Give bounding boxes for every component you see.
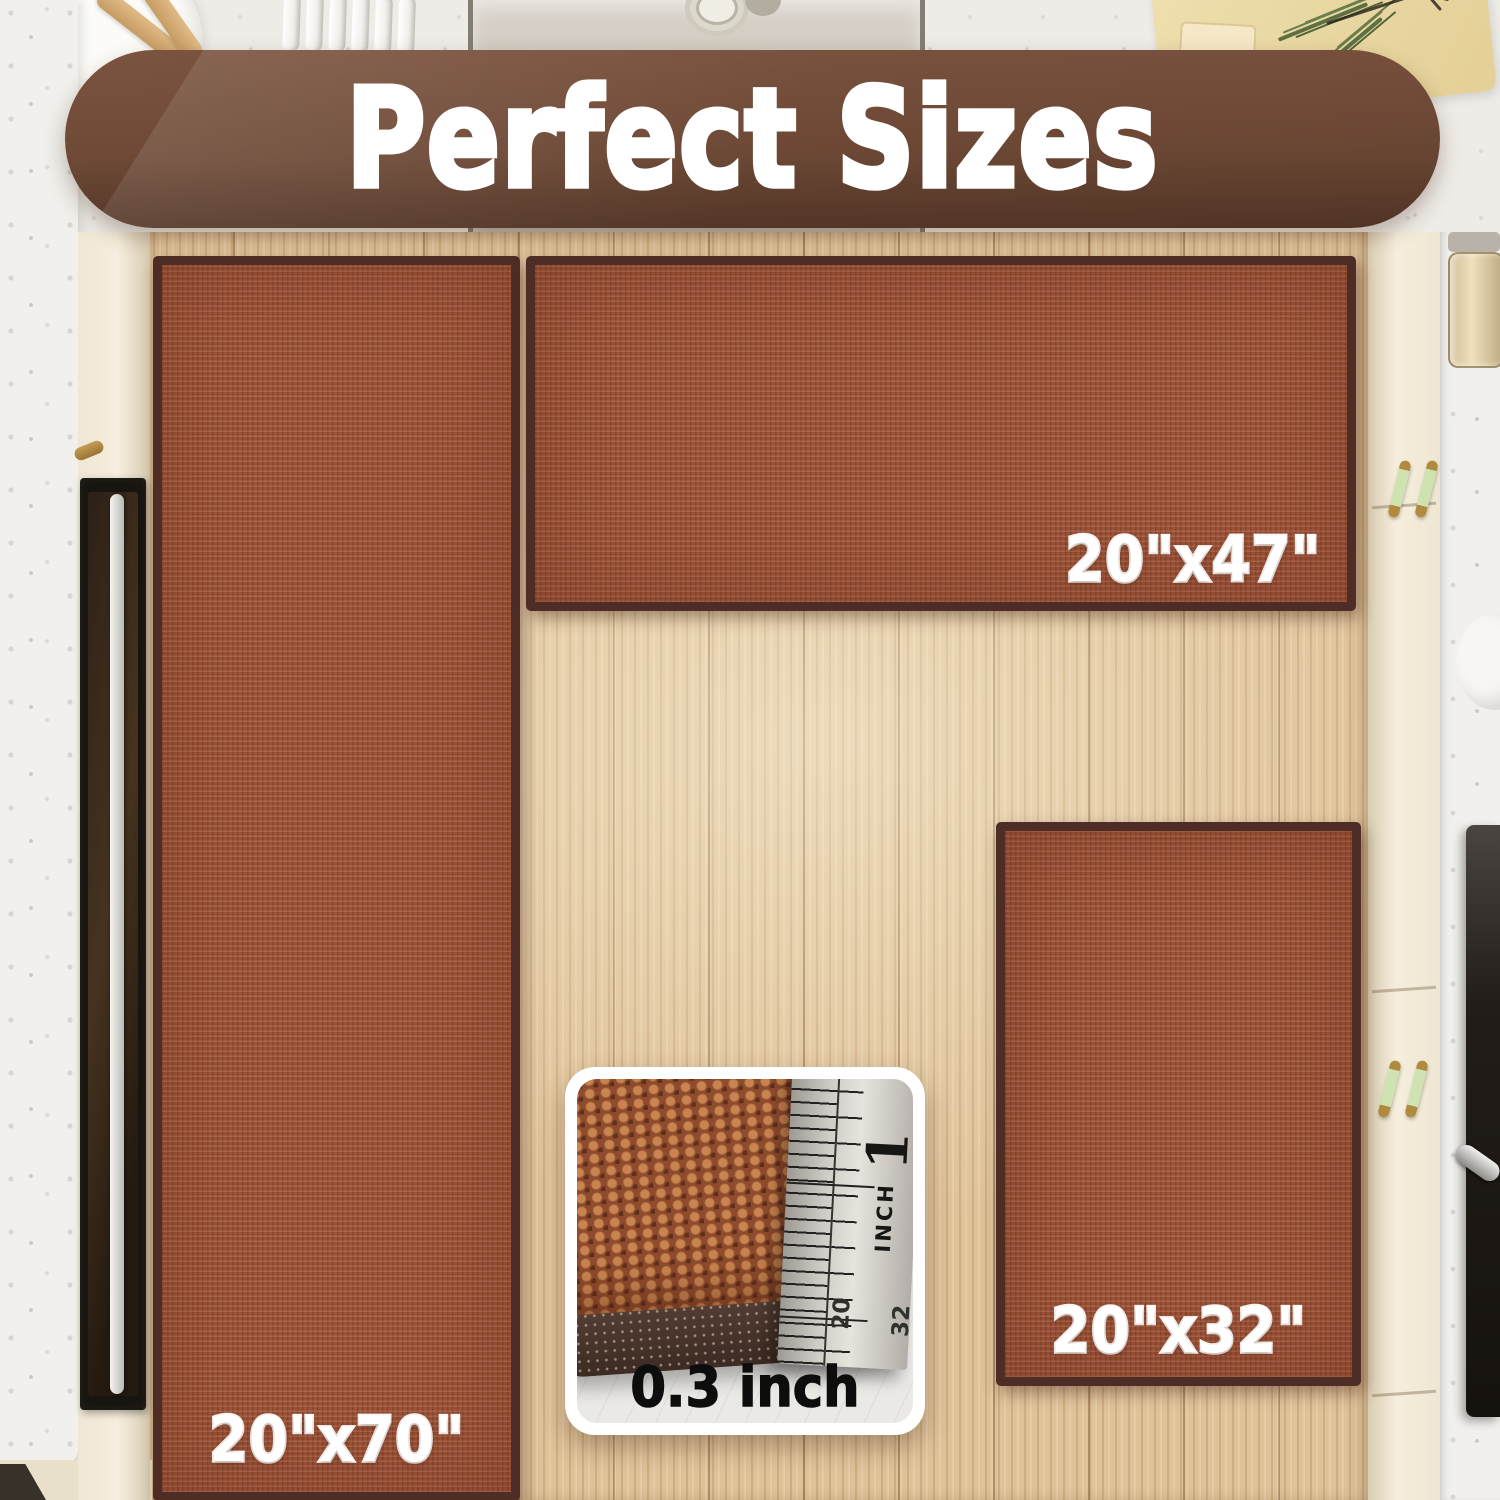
rug-runner-20x70: 20"x70" — [153, 256, 520, 1500]
banner-title: Perfect Sizes — [346, 60, 1159, 218]
cabinet-column-right — [1368, 232, 1440, 1500]
ruler-inch-marking: INCH 1 — [850, 1130, 913, 1255]
cabinet-handle — [1387, 460, 1412, 519]
cabinet-handle — [1414, 460, 1439, 519]
rug-wide-20x47: 20"x47" — [526, 256, 1356, 611]
jar-lid — [1448, 232, 1500, 252]
size-label-runner: 20"x70" — [209, 1403, 465, 1476]
plate-edge — [351, 0, 370, 54]
steel-ruler: INCH 1 20 32 — [777, 1079, 913, 1370]
ruler-unit-label: INCH — [870, 1182, 898, 1254]
wall-oven — [80, 478, 146, 1410]
ruler-inch-number: 1 — [854, 1130, 913, 1172]
plate-edge — [397, 0, 416, 56]
thickness-photo: INCH 1 20 32 0.3 inch — [577, 1079, 913, 1423]
headline-banner: Perfect Sizes — [65, 50, 1440, 228]
size-label-wide: 20"x47" — [1065, 523, 1321, 596]
sink-knob — [745, 0, 781, 16]
glass-jar — [1448, 252, 1500, 368]
cabinet-column-left — [78, 232, 150, 1500]
thickness-label: 0.3 inch — [589, 1355, 901, 1419]
size-label-small: 20"x32" — [1051, 1294, 1307, 1367]
sink-drain — [685, 0, 749, 36]
cabinet-seam — [1372, 986, 1436, 993]
cabinet-seam — [1372, 1390, 1436, 1397]
ruler-number-20: 20 — [828, 1297, 856, 1330]
rosemary-sprig — [1278, 2, 1369, 42]
cabinet-handle-pair — [1394, 460, 1432, 518]
wire-rack — [1303, 0, 1449, 1]
brass-knob — [73, 439, 106, 462]
rug-small-20x32: 20"x32" — [996, 822, 1361, 1386]
plate-edge — [374, 0, 393, 55]
oven-handle — [110, 494, 124, 1394]
cabinet-handle — [1404, 1060, 1429, 1119]
cabinet-handle — [1377, 1060, 1402, 1119]
ruler-number-32: 32 — [888, 1304, 913, 1337]
product-image-canvas: 20"x70" 20"x47" 20"x32" Perfect Sizes IN… — [0, 0, 1500, 1500]
plate-edge — [328, 0, 347, 54]
plate-edge — [305, 0, 324, 53]
black-appliance — [1466, 825, 1500, 1417]
cabinet-handle-pair — [1384, 1060, 1422, 1118]
plate-edge — [282, 0, 301, 52]
thickness-inset-card: INCH 1 20 32 0.3 inch — [565, 1067, 925, 1435]
white-bowl — [1456, 614, 1500, 710]
